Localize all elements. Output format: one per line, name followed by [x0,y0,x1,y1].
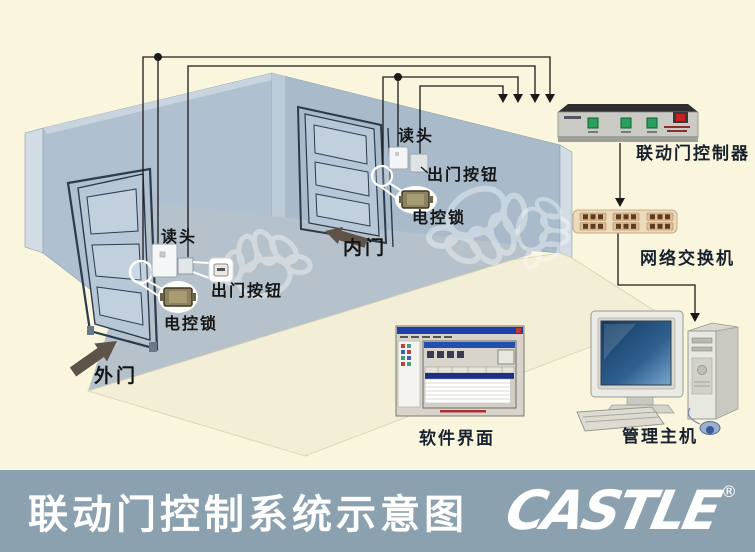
outer-exit-button-label: 出门按钮 [211,281,283,300]
toolbar-icon [457,351,464,358]
controller-logo-mark [564,116,581,119]
app-close-icon [516,328,521,333]
reader-window [395,152,399,156]
outer-door-foot-right [149,342,157,352]
inner-lock-label: 电控锁 [412,208,466,227]
status-strip [425,403,514,407]
inner-reader-label: 读头 [398,126,434,145]
system-diagram: 读头 出门按钮 电控锁 外门 读头 出门按钮 电控锁 内门 联动门控制器 网络交… [0,0,755,470]
drive-bay [692,347,712,351]
controller-button-green [588,118,598,128]
reader-window [160,252,165,257]
controller-nameplate [664,126,690,128]
junction-dot [394,73,402,81]
scrollbar [510,379,514,403]
power-button [698,366,707,375]
mouse-ball [706,426,714,434]
callout-line [193,262,209,263]
menu-item [400,336,408,338]
inner-door-label: 内门 [343,236,387,259]
monitor-stand [627,397,653,405]
selected-row [425,373,514,379]
inner-exit-button-label: 出门按钮 [427,165,499,184]
menu-item [433,336,441,338]
lock-nub [399,196,403,203]
lock-nub [429,196,433,203]
host-label: 管理主机 [622,426,698,447]
controller-button-caption [647,131,657,133]
junction-dot [154,53,162,61]
switch-label: 网络交换机 [640,248,735,269]
outer-exit-button-mounted [178,258,193,274]
controller-power-switch [676,114,685,121]
inner-exit-button-mounted [410,154,428,172]
management-host [577,311,738,435]
registered-trademark-icon: ® [721,482,737,501]
outer-lock-position-circle [130,261,152,283]
app-titlebar [397,327,523,334]
menu-item [444,336,452,338]
outer-lock-label: 电控锁 [164,314,218,333]
child-titlebar [424,342,515,348]
tower-panel [692,358,712,394]
controller-button-caption [621,131,631,133]
menu-item [422,336,430,338]
left-wall-end-cap [25,128,43,253]
lock-plate [407,194,424,205]
controller-nameplate [667,130,687,132]
outer-card-reader [152,244,177,277]
controller-button-green [621,118,631,128]
lock-nub [192,293,196,301]
list-header [425,367,514,373]
title-bar: 联动门控制系统示意图 CASTLE ® [0,470,755,552]
lock-nub [160,293,164,301]
controller-label: 联动门控制器 [636,143,750,164]
controller-button-green [647,118,657,128]
button-slot [217,268,225,271]
controller-device [558,104,698,142]
brand-logo: CASTLE ® [507,484,737,538]
side-button [498,350,514,364]
controller-base [558,136,698,142]
network-switch-device [573,210,677,233]
software-window [396,326,524,416]
page-title: 联动门控制系统示意图 [28,482,468,540]
lock-plate [169,291,187,303]
corner-edge [272,73,285,230]
outer-door-panel-top [87,189,138,234]
drive-bay [692,338,712,343]
menu-item [411,336,419,338]
software-label: 软件界面 [419,428,495,449]
outer-door-foot-left [87,326,94,335]
diagram-stage: 读头 出门按钮 电控锁 外门 读头 出门按钮 电控锁 内门 联动门控制器 网络交… [0,0,755,552]
controller-top [558,104,698,112]
outer-door-label: 外门 [94,364,138,387]
toolbar-icon [437,351,444,358]
controller-button-caption [588,131,598,133]
toolbar-icon [447,351,454,358]
logo-wordmark: CASTLE [501,484,723,538]
inner-card-reader [389,147,408,169]
outer-reader-label: 读头 [161,227,197,246]
tower-side [716,327,738,419]
toolbar-icon [427,351,434,358]
caption-text-mark [440,410,486,413]
